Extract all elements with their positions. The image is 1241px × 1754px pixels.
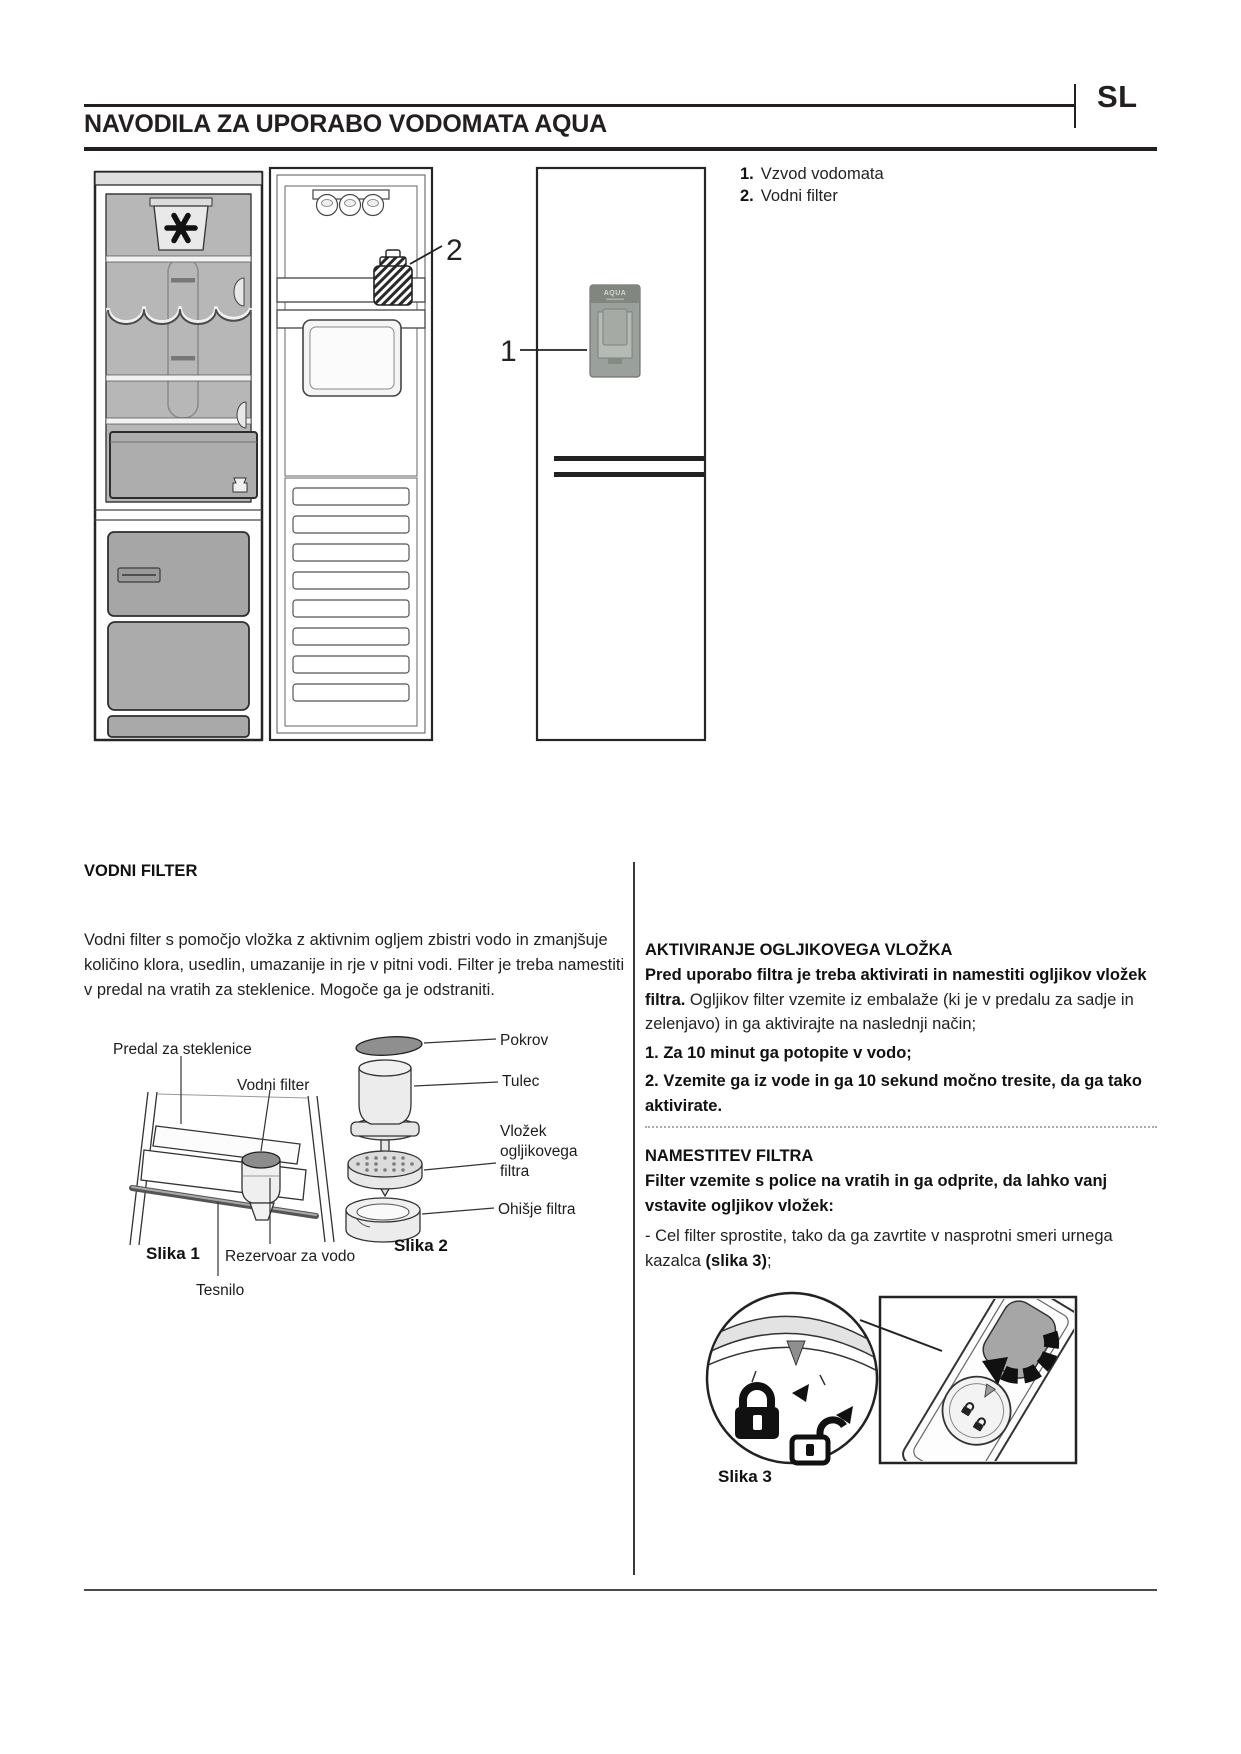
caption-slika-3: Slika 3 (718, 1467, 772, 1487)
egg-tray (313, 190, 389, 216)
installation-bullet-figref: (slika 3) (706, 1252, 767, 1270)
activation-step-2: 2. Vzemite ga iz vode in ga 10 sekund mo… (645, 1069, 1159, 1118)
water-filter-paragraph: Vodni filter s pomočjo vložka z aktivnim… (84, 928, 636, 1003)
activation-lead-rest: Ogljikov filter vzemite iz embalaže (ki … (645, 991, 1134, 1034)
slika3-artwork (640, 1285, 1090, 1470)
column-divider (633, 862, 635, 1575)
language-code: SL (1097, 79, 1138, 115)
jug-icon (233, 478, 247, 492)
title-underline (84, 147, 1157, 151)
installation-bullet-post: ; (767, 1252, 772, 1270)
label-sleeve: Tulec (502, 1072, 539, 1092)
section-heading-installation: NAMESTITEV FILTRA (645, 1147, 813, 1166)
section-heading-water-filter: VODNI FILTER (84, 862, 197, 881)
label-reservoir: Rezervoar za vodo (225, 1247, 355, 1267)
dispenser-brand-text: AQUA (604, 290, 627, 297)
water-dispenser: AQUA (590, 285, 640, 377)
header-rule (84, 104, 1074, 107)
caption-slika-2: Slika 2 (394, 1236, 448, 1256)
activation-lead: Pred uporabo filtra je treba aktivirati … (645, 963, 1159, 1037)
legend-num-1: 1. (740, 163, 754, 185)
label-housing: Ohišje filtra (498, 1200, 576, 1220)
legend-label-1: Vzvod vodomata (761, 163, 884, 185)
legend-item-1: 1. Vzvod vodomata (740, 163, 884, 185)
callout-2: 2 (446, 234, 463, 267)
caption-slika-1: Slika 1 (146, 1244, 200, 1264)
label-cap: Pokrov (500, 1031, 548, 1051)
label-water-filter: Vodni filter (237, 1076, 309, 1096)
fridge-interior-diagram (95, 172, 262, 740)
legend-item-2: 2. Vodni filter (740, 185, 884, 207)
fridge-door-diagram: 2 (270, 168, 463, 740)
door-handle-line (554, 472, 705, 477)
manual-page: SL NAVODILA ZA UPORABO VODOMATA AQUA (0, 0, 1241, 1754)
page-title: NAVODILA ZA UPORABO VODOMATA AQUA (84, 110, 607, 139)
installation-lead: Filter vzemite s police na vratih in ga … (645, 1169, 1159, 1218)
header-tick (1074, 84, 1076, 128)
section-heading-activation: AKTIVIRANJE OGLJIKOVEGA VLOŽKA (645, 941, 952, 960)
activation-step-1: 1. Za 10 minut ga potopite v vodo; (645, 1041, 1159, 1066)
legend-label-2: Vodni filter (761, 185, 838, 207)
callout-1: 1 (500, 335, 517, 368)
diagram-legend: 1. Vzvod vodomata 2. Vodni filter (740, 163, 884, 207)
label-seal: Tesnilo (196, 1281, 244, 1301)
slika2-drawing (346, 1035, 498, 1242)
legend-num-2: 2. (740, 185, 754, 207)
label-cartridge: Vložek ogljikovega filtra (500, 1122, 596, 1182)
fridge-diagrams: 2 AQUA 1 (84, 160, 1157, 755)
footer-rule (84, 1589, 1157, 1591)
installation-bullet: - Cel filter sprostite, tako da ga zavrt… (645, 1224, 1159, 1273)
door-handle-line (554, 456, 705, 461)
fridge-front-diagram: AQUA 1 (500, 168, 705, 740)
water-filter-icon (374, 250, 412, 305)
section-divider-dotted (645, 1126, 1157, 1128)
label-bottle-shelf: Predal za steklenice (113, 1040, 252, 1060)
